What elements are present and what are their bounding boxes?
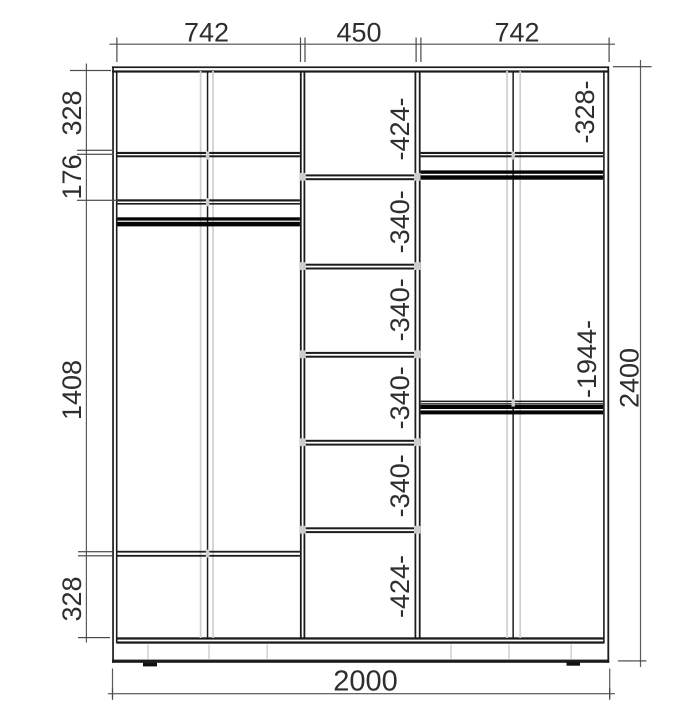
svg-text:1408: 1408 xyxy=(57,360,87,420)
svg-text:-328-: -328- xyxy=(570,80,600,143)
svg-text:450: 450 xyxy=(336,18,381,48)
svg-text:742: 742 xyxy=(494,18,539,48)
svg-text:742: 742 xyxy=(184,18,229,48)
svg-text:-340-: -340- xyxy=(385,278,415,341)
svg-text:176: 176 xyxy=(57,154,87,199)
svg-text:-424-: -424- xyxy=(385,97,415,160)
svg-text:328: 328 xyxy=(57,576,87,621)
svg-text:328: 328 xyxy=(57,90,87,135)
svg-text:-1944-: -1944- xyxy=(572,320,602,398)
svg-text:2400: 2400 xyxy=(614,348,644,408)
svg-text:2000: 2000 xyxy=(333,666,398,698)
svg-text:-424-: -424- xyxy=(385,555,415,618)
svg-text:-340-: -340- xyxy=(385,454,415,517)
svg-text:-340-: -340- xyxy=(385,366,415,429)
svg-text:-340-: -340- xyxy=(385,190,415,253)
